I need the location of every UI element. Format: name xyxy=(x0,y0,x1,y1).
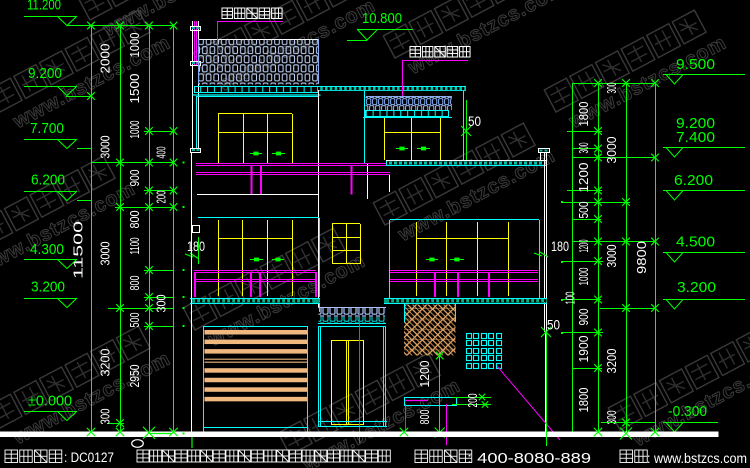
svg-text:9800: 9800 xyxy=(634,241,649,274)
svg-text:900: 900 xyxy=(576,309,591,326)
svg-text:200: 200 xyxy=(154,191,169,204)
svg-text:300: 300 xyxy=(604,411,619,425)
svg-text:1800: 1800 xyxy=(576,102,591,127)
svg-text:4.500: 4.500 xyxy=(676,235,715,251)
svg-text:3000: 3000 xyxy=(604,245,619,268)
svg-text:7.700: 7.700 xyxy=(30,121,64,137)
svg-text:2000: 2000 xyxy=(98,44,113,74)
svg-text:1000: 1000 xyxy=(127,121,142,139)
svg-text:6.200: 6.200 xyxy=(674,173,713,189)
svg-text:1900: 1900 xyxy=(576,336,591,363)
svg-text:400: 400 xyxy=(154,147,169,159)
svg-text:: www.bstzcs.com: : www.bstzcs.com xyxy=(647,451,747,466)
svg-text:±0.000: ±0.000 xyxy=(28,394,72,410)
svg-text:3.200: 3.200 xyxy=(677,280,716,296)
svg-text:3200: 3200 xyxy=(604,349,619,374)
svg-text:300: 300 xyxy=(604,83,619,94)
svg-text:2950: 2950 xyxy=(127,365,142,388)
svg-text:3000: 3000 xyxy=(604,137,619,164)
svg-text:9.200: 9.200 xyxy=(28,66,62,82)
svg-text:: DC0127: : DC0127 xyxy=(64,450,114,465)
svg-text:10.800: 10.800 xyxy=(362,11,402,27)
svg-text:1100: 1100 xyxy=(127,238,142,255)
svg-text:11500: 11500 xyxy=(71,221,86,279)
svg-text:50: 50 xyxy=(468,114,481,129)
svg-text:100: 100 xyxy=(563,292,578,305)
svg-text:: 400-8080-889: : 400-8080-889 xyxy=(467,451,591,467)
svg-text:1000: 1000 xyxy=(127,33,142,58)
svg-text:4.300: 4.300 xyxy=(30,242,64,258)
svg-text:900: 900 xyxy=(127,170,142,187)
svg-text:1200: 1200 xyxy=(576,240,591,253)
svg-text:500: 500 xyxy=(127,313,142,328)
svg-text:9.500: 9.500 xyxy=(676,57,715,73)
svg-text:180: 180 xyxy=(551,239,569,254)
svg-text:3200: 3200 xyxy=(98,349,113,377)
svg-text:1800: 1800 xyxy=(576,388,591,413)
svg-text:3.200: 3.200 xyxy=(31,280,65,296)
svg-text:180: 180 xyxy=(187,239,205,254)
svg-text:6.200: 6.200 xyxy=(31,173,65,189)
svg-text:11.200: 11.200 xyxy=(27,0,61,14)
svg-text:3000: 3000 xyxy=(98,242,113,266)
svg-text:800: 800 xyxy=(417,410,432,425)
svg-text:1500: 1500 xyxy=(127,74,142,104)
svg-text:1200: 1200 xyxy=(417,361,432,388)
svg-text:300: 300 xyxy=(576,143,591,154)
svg-text:-0.300: -0.300 xyxy=(668,404,707,420)
svg-text:50: 50 xyxy=(547,318,560,333)
svg-text:300: 300 xyxy=(98,409,113,425)
svg-text:800: 800 xyxy=(127,211,142,229)
svg-text:3000: 3000 xyxy=(98,136,113,159)
svg-text:7.400: 7.400 xyxy=(676,130,715,146)
svg-text:300: 300 xyxy=(154,295,169,313)
svg-text:1000: 1000 xyxy=(576,268,591,286)
svg-text:800: 800 xyxy=(127,276,142,291)
svg-text:1200: 1200 xyxy=(576,163,591,193)
svg-text:500: 500 xyxy=(576,202,591,219)
svg-text:200: 200 xyxy=(465,394,480,408)
